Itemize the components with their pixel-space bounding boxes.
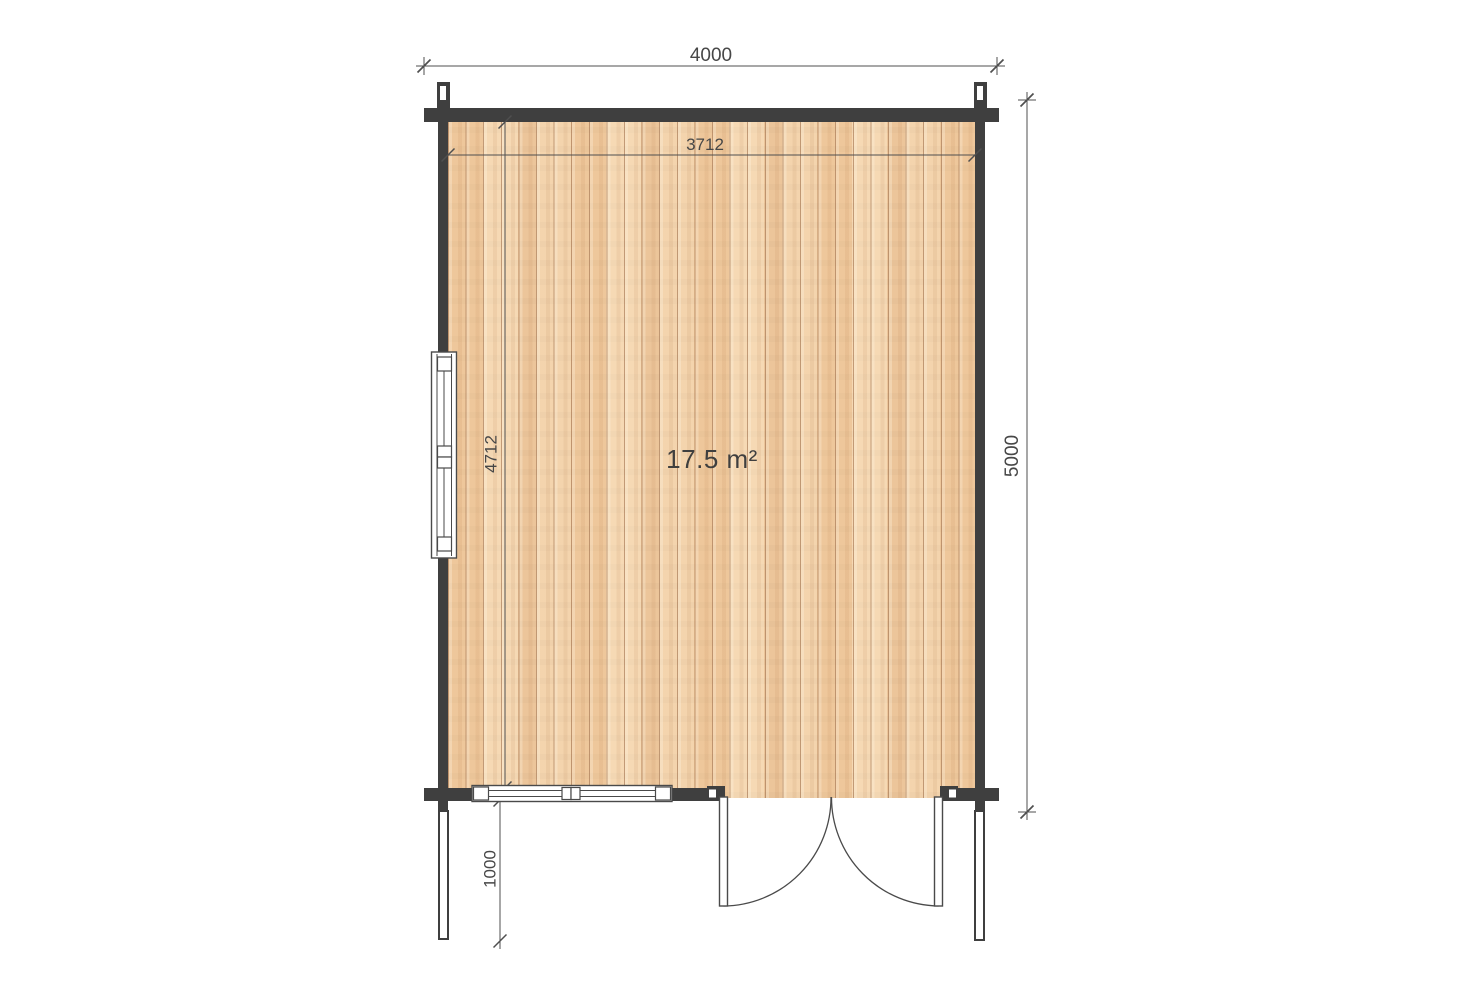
door-swing-arc-right — [831, 797, 938, 906]
double-door — [707, 786, 958, 906]
dim-label-interior-width: 3712 — [686, 135, 724, 154]
area-label: 17.5 m² — [612, 444, 812, 475]
dim-label-overall-width: 4000 — [690, 45, 732, 66]
dim-label-interior-depth: 4712 — [481, 435, 500, 473]
door-swing-arc-left — [724, 797, 832, 906]
door-leaf-left — [720, 797, 728, 906]
door-leaf-right — [935, 797, 943, 906]
linework-overlay: 4000 5000 3712 4712 10 — [0, 0, 1458, 1000]
front-window — [472, 786, 672, 802]
dim-label-overall-depth: 5000 — [1002, 435, 1023, 477]
floorplan-canvas: 4000 5000 3712 4712 10 — [0, 0, 1458, 1000]
left-window — [432, 352, 457, 558]
dim-label-porch-depth: 1000 — [480, 850, 499, 888]
